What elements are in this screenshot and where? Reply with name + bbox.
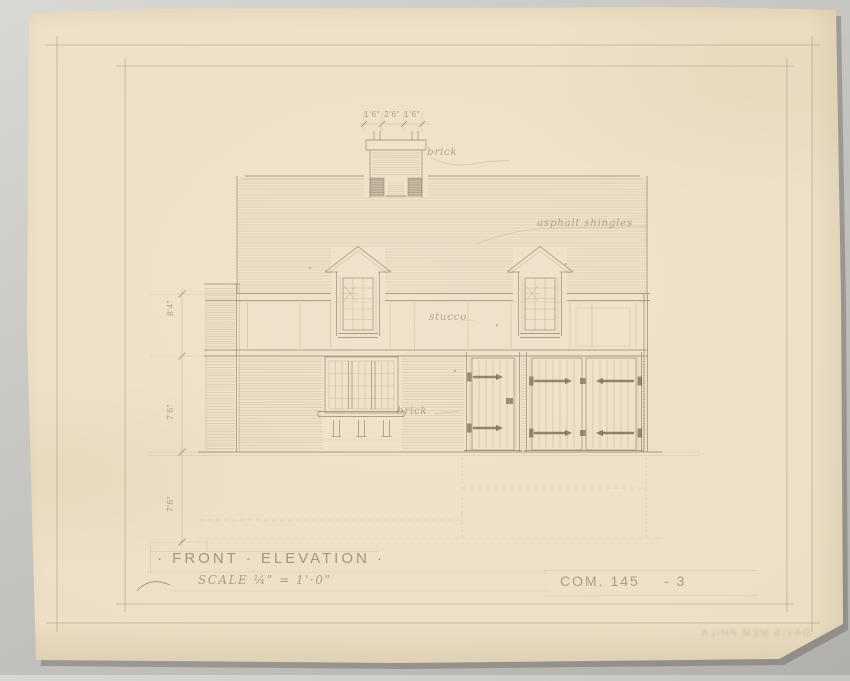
drawing-title: · FRONT · ELEVATION · — [157, 551, 385, 568]
label-asphalt-shingles: asphalt shingles — [537, 218, 633, 230]
drawing-sheet: 1'6" 2'6" 1'6" brick asphalt shingles st… — [0, 0, 850, 675]
label-stucco: stucco — [429, 312, 467, 324]
label-brick-chimney: brick — [427, 147, 457, 159]
dim-upper-story: 8'4" — [166, 300, 175, 316]
dim-chimney-right: 1'6" — [404, 110, 420, 119]
annotation-layer: 1'6" 2'6" 1'6" brick asphalt shingles st… — [0, 0, 850, 675]
sheet-number: - 3 — [664, 574, 686, 589]
dim-chimney-mid: 2'6" — [384, 110, 400, 119]
label-brick-base: brick — [397, 406, 427, 418]
dim-basement: 7'6" — [166, 496, 175, 512]
faint-inscription: DAVIS MEM PHILA — [700, 628, 810, 639]
drawing-number: COM. 145 — [560, 574, 640, 589]
scanned-drawing-page: { "titleblock": { "title": "· FRONT · EL… — [0, 0, 850, 675]
dim-lower-story: 7'6" — [166, 404, 175, 420]
drawing-scale: SCALE ¼" = 1'·0" — [198, 574, 331, 587]
dim-chimney-left: 1'6" — [364, 110, 380, 119]
